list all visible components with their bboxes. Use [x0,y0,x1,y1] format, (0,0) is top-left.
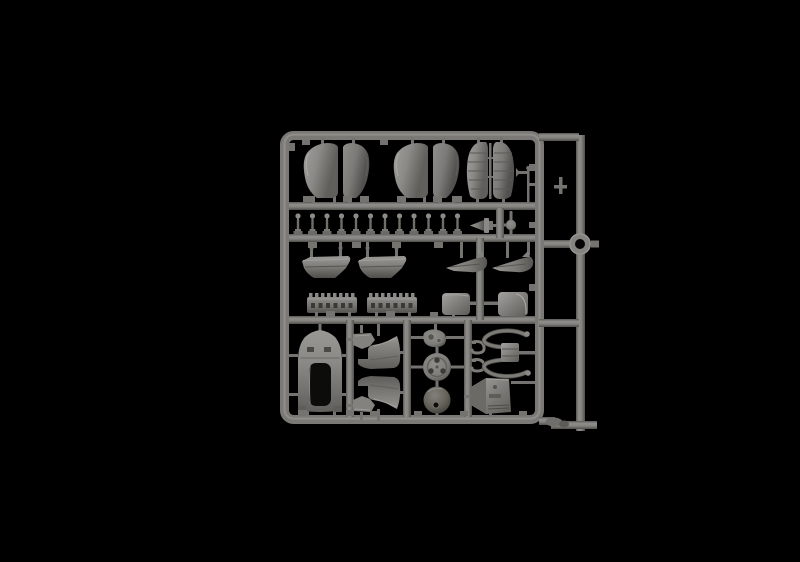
vignette-overlay [40,16,800,546]
sprue-photograph [40,16,800,546]
